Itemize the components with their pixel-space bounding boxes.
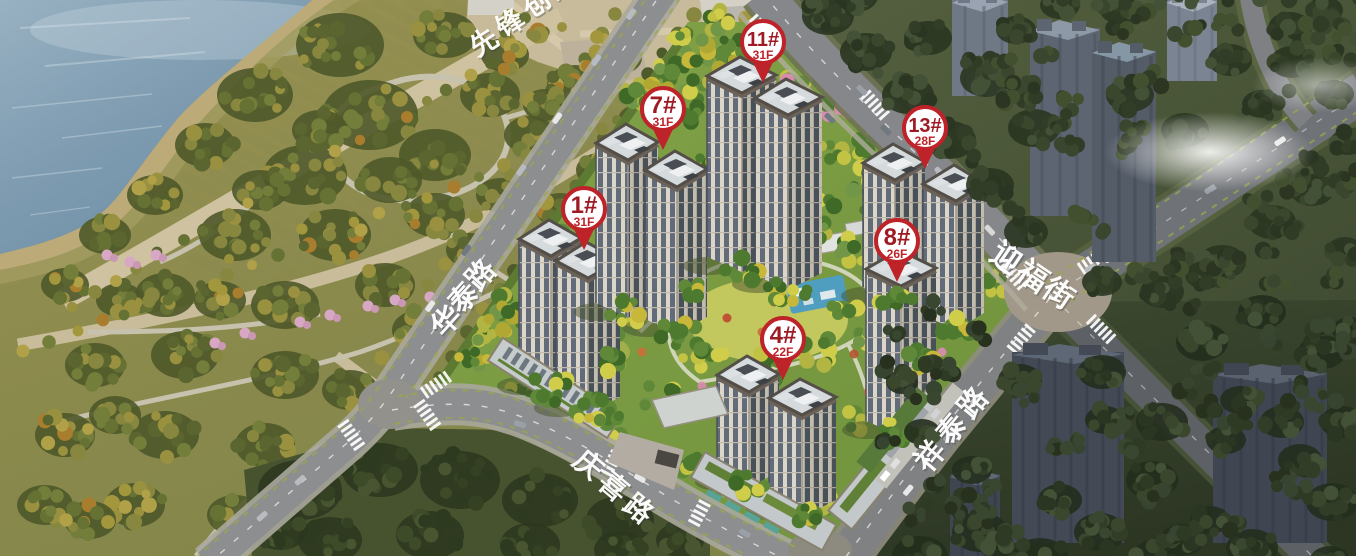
svg-text:22F: 22F [773,345,794,359]
svg-text:28F: 28F [915,134,936,148]
svg-text:26F: 26F [887,247,908,261]
svg-text:31F: 31F [574,215,595,229]
svg-text:31F: 31F [653,115,674,129]
svg-text:31F: 31F [753,48,774,62]
